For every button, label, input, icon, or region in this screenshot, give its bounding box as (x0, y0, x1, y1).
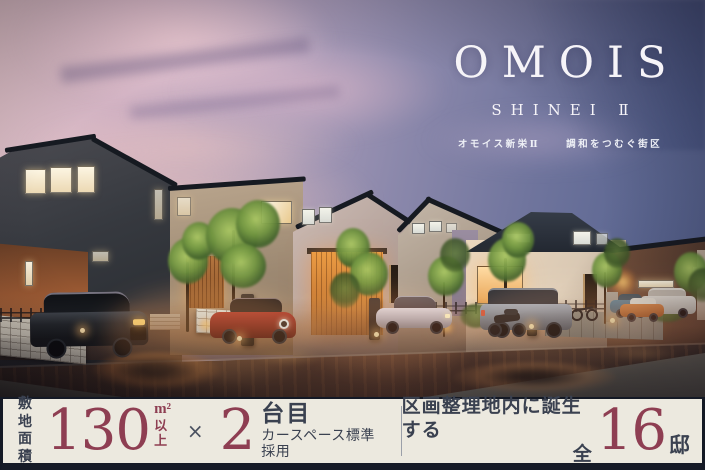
spec-total-homes: 区画整理地内に誕生する 全 16 邸 (402, 395, 690, 466)
spec-banner: 敷地 面積 130 m² 以上 × 2 台目 カースペース標準採用 区画整理地内… (0, 397, 705, 470)
brand-name: OMOIS (425, 42, 695, 85)
site-area-label-line1: 敷地 (18, 396, 41, 431)
site-area-label: 敷地 面積 (18, 396, 41, 466)
multiply-sign: × (187, 419, 204, 443)
total-homes-unit: 邸 (669, 429, 690, 459)
site-area-unit-m2: m² (154, 401, 173, 418)
project-logo: OMOIS SHINEI Ⅱ オモイス新栄Ⅱ 調和をつむぐ街区 (425, 42, 695, 150)
car-space-text: 台目 カースペース標準採用 (261, 401, 386, 461)
total-homes-prefix: 全 (573, 443, 592, 467)
logo-subtext: オモイス新栄Ⅱ 調和をつむぐ街区 (425, 136, 695, 150)
project-name-jp: オモイス新栄Ⅱ (458, 136, 540, 150)
advertisement-image: OMOIS SHINEI Ⅱ オモイス新栄Ⅱ 調和をつむぐ街区 敷地 面積 13… (0, 0, 705, 470)
car-space-value: 2 (220, 405, 255, 458)
series-name: SHINEI Ⅱ (425, 101, 695, 119)
spec-car-space: 2 台目 カースペース標準採用 (220, 401, 387, 461)
car-space-description: カースペース標準採用 (261, 429, 386, 461)
total-homes-text: 区画整理地内に誕生する 全 (402, 395, 592, 466)
total-homes-value: 16 (597, 405, 666, 458)
site-area-label-line2: 面積 (18, 431, 41, 466)
site-area-unit-suffix: 以上 (154, 419, 173, 449)
car-space-unit: 台目 (261, 401, 386, 427)
site-area-value: 130 (46, 405, 150, 458)
total-homes-description: 区画整理地内に誕生する (402, 395, 592, 443)
spec-site-area: 敷地 面積 130 m² 以上 (18, 396, 173, 466)
development-photo: OMOIS SHINEI Ⅱ オモイス新栄Ⅱ 調和をつむぐ街区 (0, 0, 705, 397)
site-area-unit: m² 以上 (154, 401, 173, 448)
tagline-jp: 調和をつむぐ街区 (566, 136, 662, 150)
